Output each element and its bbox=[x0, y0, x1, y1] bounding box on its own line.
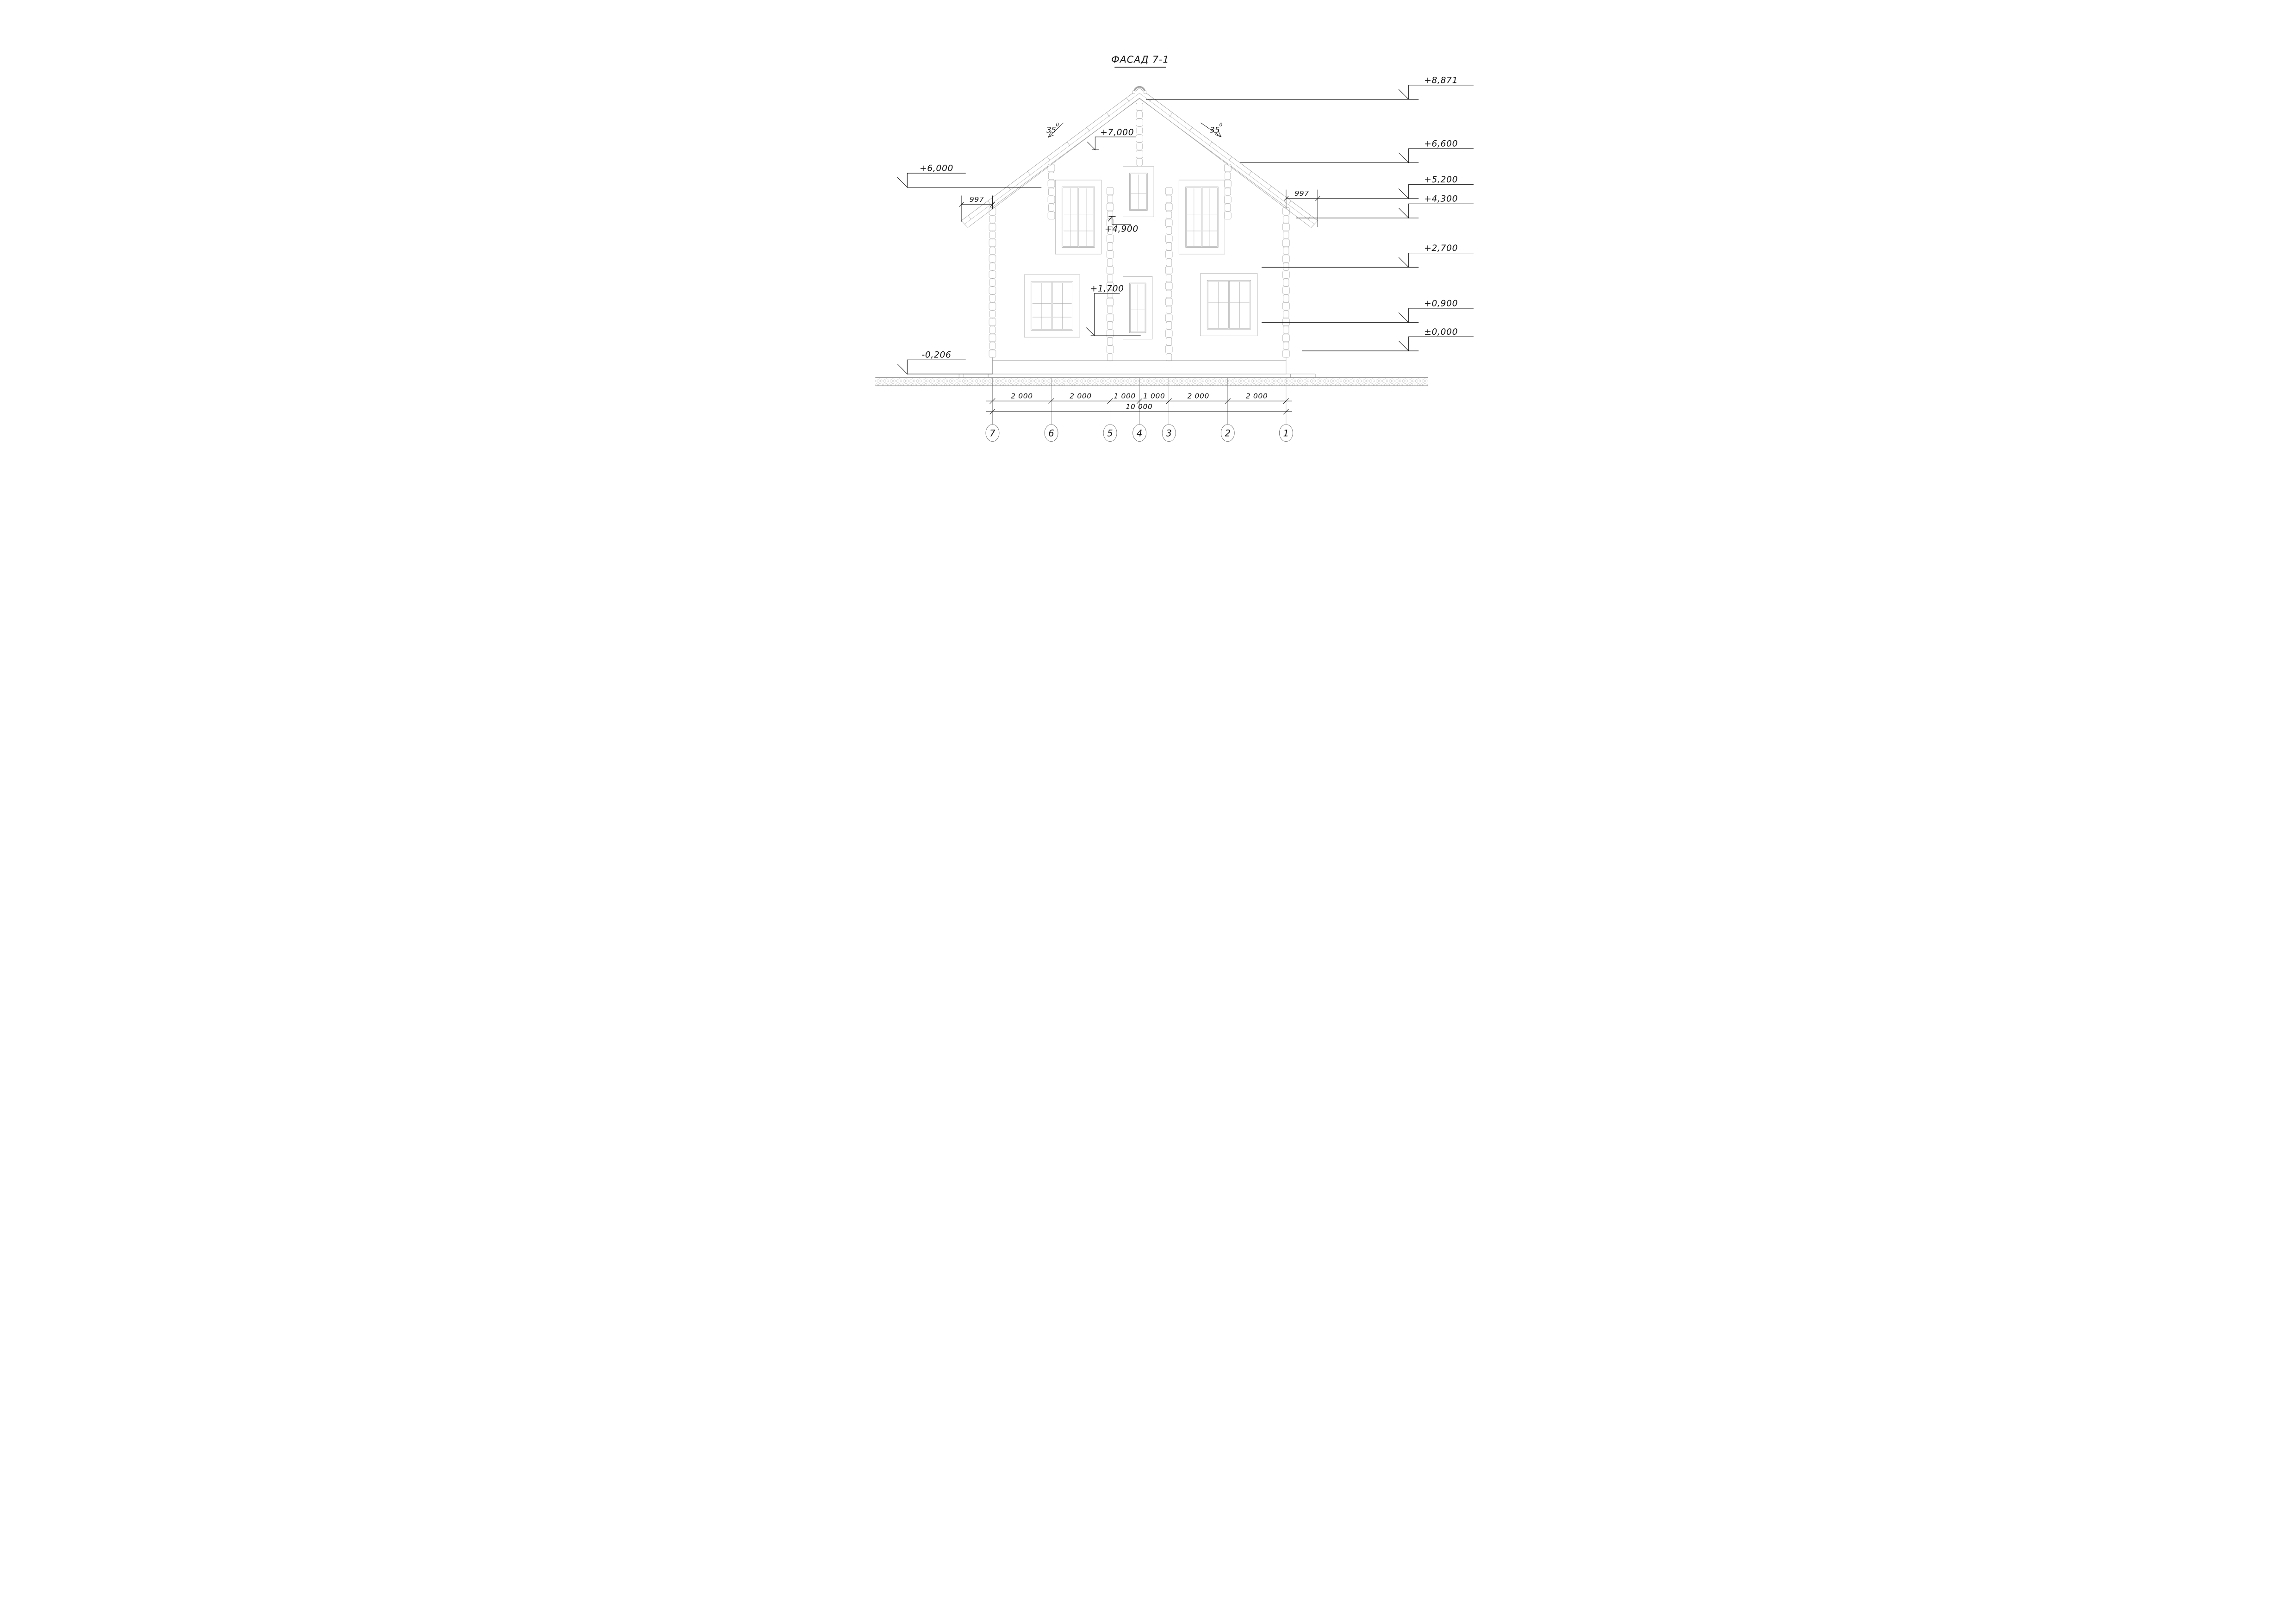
log-end bbox=[1282, 334, 1289, 342]
log-end bbox=[989, 311, 995, 318]
log-end bbox=[989, 231, 995, 239]
log-end bbox=[1107, 338, 1113, 345]
batten-tick bbox=[988, 200, 990, 205]
dim-value: 997 bbox=[1294, 189, 1309, 198]
elevation-label: +1,700 bbox=[1090, 284, 1124, 294]
batten-tick bbox=[968, 215, 971, 219]
log-end bbox=[1282, 239, 1289, 247]
axis-label: 3 bbox=[1166, 428, 1171, 438]
axis-label: 2 bbox=[1225, 428, 1230, 438]
batten-tick bbox=[1189, 127, 1192, 131]
batten-tick bbox=[1169, 112, 1172, 117]
log-end bbox=[1225, 204, 1230, 211]
log-end bbox=[1283, 247, 1288, 255]
log-end bbox=[1282, 287, 1289, 294]
batten-tick bbox=[1288, 200, 1291, 205]
log-end bbox=[1224, 212, 1231, 219]
log-end bbox=[1048, 164, 1055, 172]
window-upper-left bbox=[1055, 180, 1101, 254]
axis-label: 7 bbox=[989, 428, 996, 438]
log-end bbox=[1282, 255, 1289, 262]
log-end bbox=[1048, 188, 1054, 195]
terrace-left bbox=[959, 374, 988, 378]
log-end bbox=[1165, 203, 1172, 211]
log-end bbox=[1136, 103, 1143, 111]
elevation-mark bbox=[1087, 137, 1136, 150]
log-end bbox=[1048, 212, 1055, 219]
batten-tick bbox=[1067, 142, 1070, 146]
log-end bbox=[1165, 187, 1172, 195]
dim-segment: 2 000 bbox=[1187, 392, 1209, 400]
brick-plinth bbox=[992, 361, 1286, 374]
ridge-cap-foot-left bbox=[1132, 91, 1135, 94]
log-end bbox=[1107, 346, 1114, 353]
log-end bbox=[1107, 250, 1114, 258]
log-end bbox=[1165, 250, 1172, 258]
log-end bbox=[989, 302, 996, 310]
log-end bbox=[1048, 180, 1055, 187]
windows bbox=[1024, 167, 1257, 339]
roof-angle-right: 35 0 bbox=[1201, 122, 1222, 137]
log-end bbox=[1224, 164, 1231, 172]
elevation-mark bbox=[1146, 85, 1474, 100]
batten-tick bbox=[1209, 142, 1212, 146]
log-end bbox=[989, 223, 996, 231]
log-end bbox=[989, 334, 996, 342]
ridge-cap-foot-right bbox=[1144, 91, 1146, 94]
elevation-label: ±0,000 bbox=[1424, 327, 1458, 337]
log-end bbox=[1166, 259, 1171, 266]
log-end bbox=[989, 342, 995, 350]
log-end bbox=[1107, 187, 1114, 195]
log-end bbox=[989, 255, 996, 262]
batten-tick bbox=[1047, 156, 1050, 161]
batten-tick bbox=[1150, 98, 1152, 102]
elevation-label: +4,300 bbox=[1424, 194, 1458, 204]
log-end bbox=[989, 239, 996, 247]
log-end bbox=[1107, 259, 1113, 266]
elevation-label: -0,206 bbox=[921, 350, 951, 360]
log-end bbox=[1283, 231, 1288, 239]
title-block: ФАСАД 7-1 bbox=[1111, 54, 1169, 67]
axis-label: 5 bbox=[1107, 428, 1113, 438]
elevation-label: +6,600 bbox=[1424, 139, 1458, 149]
log-end bbox=[1283, 326, 1288, 334]
dim-segment: 1 000 bbox=[1114, 392, 1136, 400]
elevation-label: +5,200 bbox=[1424, 175, 1458, 185]
log-end bbox=[1107, 243, 1113, 250]
elevation-label: +6,000 bbox=[920, 164, 953, 174]
log-end bbox=[1282, 271, 1289, 278]
log-end bbox=[1282, 319, 1289, 326]
angle-sup: 0 bbox=[1219, 122, 1222, 128]
angle-value: 35 bbox=[1046, 125, 1056, 134]
log-end bbox=[1107, 195, 1113, 203]
log-end bbox=[1165, 346, 1172, 353]
ground-hatch bbox=[875, 378, 1428, 386]
batten-tick bbox=[1086, 127, 1089, 131]
log-end bbox=[1225, 188, 1230, 195]
log-end bbox=[1283, 311, 1288, 318]
batten-tick bbox=[1027, 171, 1030, 175]
ground bbox=[875, 378, 1428, 386]
log-end bbox=[1165, 298, 1172, 306]
log-end bbox=[989, 263, 995, 270]
page-title: ФАСАД 7-1 bbox=[1111, 54, 1169, 65]
elevation-label: +8,871 bbox=[1424, 75, 1458, 85]
batten-tick bbox=[1106, 112, 1109, 117]
log-end bbox=[1165, 314, 1172, 321]
log-end bbox=[1137, 143, 1142, 150]
log-end bbox=[989, 271, 996, 278]
angle-sup: 0 bbox=[1056, 122, 1059, 128]
facade-drawing: 2 000 2 000 1 000 1 000 2 000 2 000 10 0… bbox=[778, 0, 1518, 524]
log-end bbox=[1137, 158, 1142, 166]
log-end bbox=[1107, 354, 1113, 361]
roof-angle-left: 35 0 bbox=[1046, 122, 1063, 137]
log-end bbox=[1166, 243, 1171, 250]
log-end bbox=[1137, 127, 1142, 134]
log-end bbox=[989, 326, 995, 334]
log-end bbox=[1107, 235, 1114, 242]
dim-total: 10 000 bbox=[1126, 403, 1152, 411]
window-frame bbox=[1185, 187, 1218, 247]
footing bbox=[988, 374, 1290, 378]
elevation-mark bbox=[1296, 204, 1474, 218]
elevation-label: +7,000 bbox=[1100, 128, 1134, 137]
log-end bbox=[1165, 330, 1172, 337]
log-end bbox=[1283, 342, 1288, 350]
log-end bbox=[1107, 298, 1114, 306]
log-end bbox=[989, 287, 996, 294]
ridge-cap bbox=[1134, 87, 1145, 93]
batten-tick bbox=[1229, 156, 1232, 161]
log-end bbox=[1166, 306, 1171, 313]
elevation-mark bbox=[1261, 253, 1473, 268]
log-end bbox=[1107, 322, 1113, 329]
log-end bbox=[1283, 279, 1288, 286]
window-frame bbox=[1062, 187, 1094, 247]
window-frame bbox=[1207, 280, 1251, 329]
log-end bbox=[1166, 354, 1171, 361]
log-end bbox=[1107, 267, 1114, 274]
angle-value: 35 bbox=[1210, 125, 1220, 134]
log-end bbox=[989, 350, 996, 357]
log-end bbox=[1166, 195, 1171, 203]
log-end bbox=[1107, 275, 1113, 282]
dim-segment: 2 000 bbox=[1011, 392, 1033, 400]
axis-label: 6 bbox=[1048, 428, 1054, 438]
log-end bbox=[989, 215, 995, 223]
log-end bbox=[989, 279, 995, 286]
elevation-mark bbox=[897, 360, 992, 374]
elevation-mark bbox=[897, 173, 1041, 187]
log-end bbox=[1166, 322, 1171, 329]
axes-and-dimensions: 2 000 2 000 1 000 1 000 2 000 2 000 10 0… bbox=[985, 378, 1292, 442]
log-end bbox=[1048, 196, 1055, 203]
batten-tick bbox=[1268, 186, 1271, 190]
window-lower-center bbox=[1123, 276, 1152, 339]
log-end bbox=[1166, 227, 1171, 234]
log-end bbox=[1166, 290, 1171, 298]
log-end bbox=[1283, 294, 1288, 302]
elevation-label: +4,900 bbox=[1104, 225, 1138, 234]
axis-label: 1 bbox=[1283, 428, 1288, 438]
batten-tick bbox=[1008, 186, 1010, 190]
elevation-label: +2,700 bbox=[1424, 244, 1458, 253]
log-end bbox=[1224, 196, 1231, 203]
log-end bbox=[1165, 219, 1172, 226]
log-end bbox=[1225, 172, 1230, 180]
log-end bbox=[1283, 263, 1288, 270]
log-end bbox=[1136, 119, 1143, 126]
window-frame bbox=[1031, 281, 1073, 331]
window-upper-right bbox=[1179, 180, 1225, 254]
log-end bbox=[1107, 306, 1113, 313]
log-end bbox=[1282, 223, 1289, 231]
window-lower-left bbox=[1024, 275, 1080, 337]
log-end bbox=[1166, 338, 1171, 345]
log-end bbox=[1048, 204, 1054, 211]
window-gable-center bbox=[1123, 167, 1153, 217]
log-end bbox=[1107, 314, 1114, 321]
log-end bbox=[989, 247, 995, 255]
log-end bbox=[1166, 211, 1171, 219]
elevation-mark bbox=[1261, 308, 1473, 323]
log-end bbox=[1107, 330, 1114, 337]
log-end bbox=[989, 319, 996, 326]
log-end bbox=[1282, 302, 1289, 310]
elevation-mark bbox=[1240, 149, 1474, 163]
drawing-sheet: 2 000 2 000 1 000 1 000 2 000 2 000 10 0… bbox=[778, 0, 1518, 524]
axis-label: 4 bbox=[1136, 428, 1142, 438]
elevation-mark bbox=[1302, 337, 1474, 351]
terrace-right bbox=[1290, 374, 1315, 378]
batten-tick bbox=[1308, 215, 1311, 219]
log-end bbox=[1048, 172, 1054, 180]
window-lower-right bbox=[1200, 274, 1257, 336]
elevation-label: +0,900 bbox=[1424, 299, 1458, 308]
log-end bbox=[1136, 135, 1143, 142]
batten-tick bbox=[1126, 98, 1129, 102]
dim-value: 997 bbox=[969, 195, 983, 204]
batten-tick bbox=[1248, 171, 1251, 175]
log-end bbox=[1136, 150, 1143, 158]
log-end bbox=[1165, 235, 1172, 242]
dim-segment: 2 000 bbox=[1245, 392, 1268, 400]
log-end bbox=[1224, 180, 1231, 187]
log-end bbox=[1283, 215, 1288, 223]
log-end bbox=[1282, 350, 1289, 357]
log-end bbox=[1107, 203, 1114, 211]
dim-segment: 1 000 bbox=[1143, 392, 1165, 400]
log-end bbox=[1137, 111, 1142, 119]
log-end bbox=[989, 294, 995, 302]
log-end bbox=[1165, 282, 1172, 290]
dim-segment: 2 000 bbox=[1070, 392, 1092, 400]
log-end bbox=[1165, 267, 1172, 274]
log-end bbox=[1166, 275, 1171, 282]
